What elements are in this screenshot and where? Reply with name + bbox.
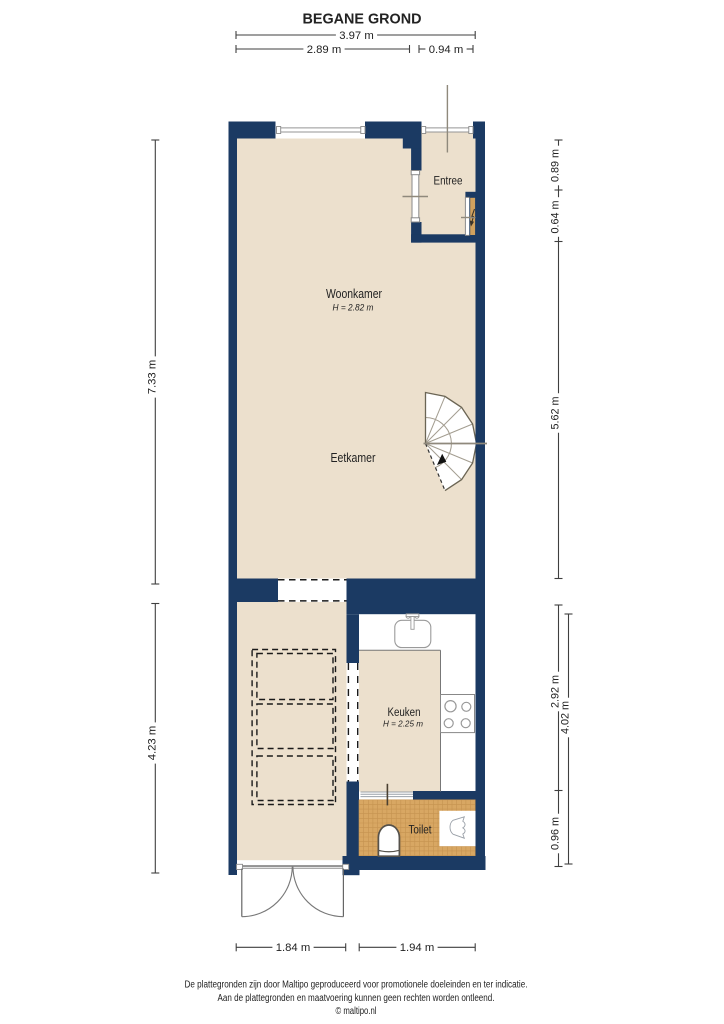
- svg-text:Eetkamer: Eetkamer: [331, 451, 376, 465]
- svg-text:2.89 m: 2.89 m: [307, 44, 342, 56]
- svg-text:4.02 m: 4.02 m: [560, 701, 572, 734]
- svg-text:Entree: Entree: [434, 176, 463, 188]
- svg-text:7.33 m: 7.33 m: [146, 360, 158, 395]
- svg-text:0.64 m: 0.64 m: [550, 200, 562, 233]
- svg-text:H = 2.25 m: H = 2.25 m: [383, 719, 423, 729]
- svg-text:5.62 m: 5.62 m: [550, 396, 562, 429]
- svg-text:Woonkamer: Woonkamer: [326, 287, 382, 301]
- svg-text:0.96 m: 0.96 m: [550, 817, 562, 850]
- svg-text:© maltipo.nl: © maltipo.nl: [336, 1006, 377, 1017]
- svg-text:H = 2.82 m: H = 2.82 m: [333, 303, 374, 313]
- svg-text:1.94 m: 1.94 m: [400, 942, 435, 954]
- svg-text:1.84 m: 1.84 m: [276, 942, 311, 954]
- svg-text:De plattegronden zijn door Mal: De plattegronden zijn door Maltipo gepro…: [185, 980, 528, 991]
- svg-text:Keuken: Keuken: [388, 707, 421, 719]
- svg-text:0.94 m: 0.94 m: [429, 44, 464, 56]
- svg-text:Toilet: Toilet: [409, 825, 433, 837]
- svg-text:BEGANE GROND: BEGANE GROND: [303, 12, 422, 28]
- svg-text:3.97 m: 3.97 m: [339, 30, 374, 42]
- svg-text:Aan de plattegronden en maatvo: Aan de plattegronden en maatvoering kunn…: [218, 993, 495, 1004]
- svg-text:4.23 m: 4.23 m: [146, 726, 158, 761]
- svg-text:0.89 m: 0.89 m: [550, 149, 562, 182]
